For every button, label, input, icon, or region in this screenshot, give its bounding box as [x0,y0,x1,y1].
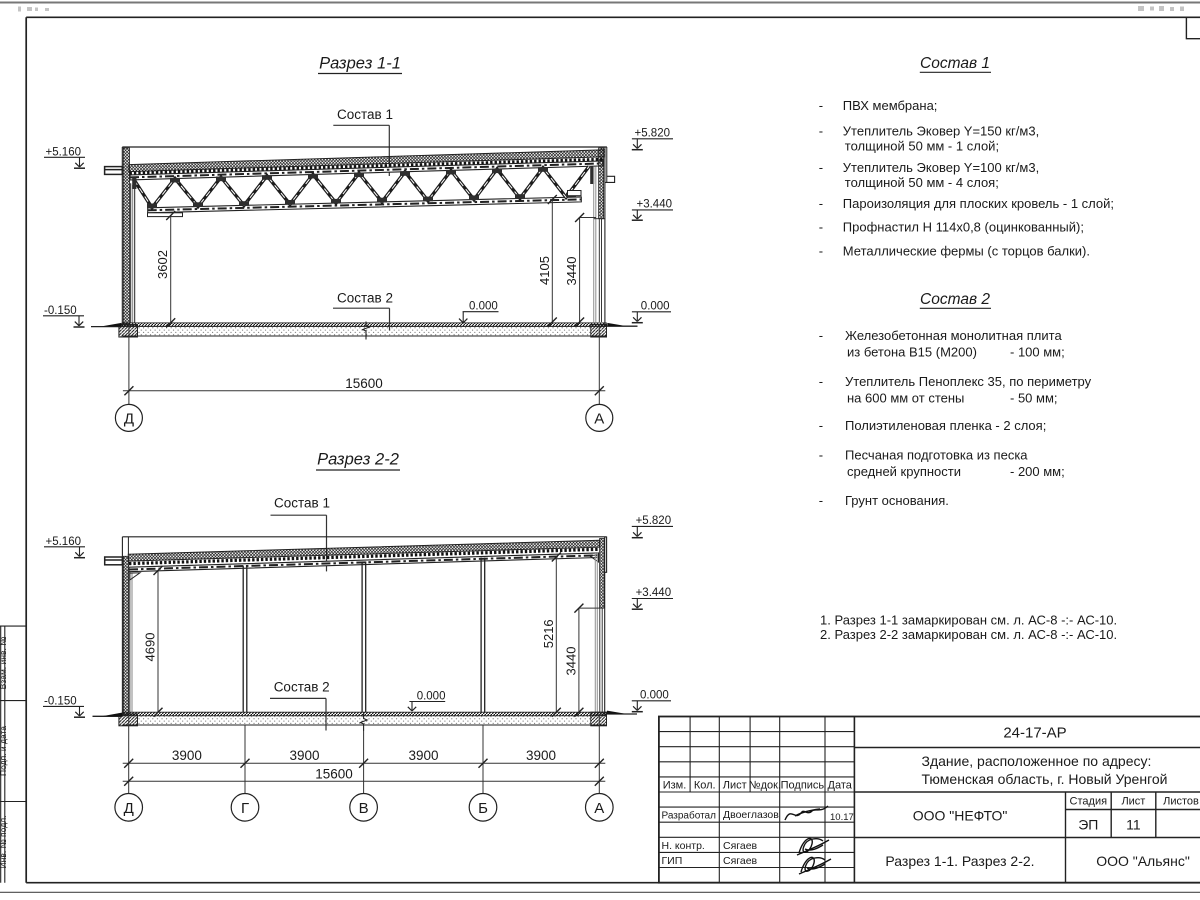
svg-text:Состав 1: Состав 1 [274,496,330,511]
svg-text:24-17-АР: 24-17-АР [1003,725,1066,742]
svg-text:3602: 3602 [155,250,170,279]
svg-text:Стадия: Стадия [1070,796,1108,808]
svg-text:- 100 мм;: - 100 мм; [1010,345,1065,360]
svg-text:Грунт основания.: Грунт основания. [845,493,949,508]
svg-text:-0.150: -0.150 [44,695,77,707]
svg-text:Утеплитель Эковер Y=150 кг/м3,: Утеплитель Эковер Y=150 кг/м3, [843,124,1039,139]
svg-text:- 50 мм;: - 50 мм; [1010,391,1058,406]
svg-text:3900: 3900 [408,748,438,763]
svg-text:1. Разрез 1-1 замаркирован см.: 1. Разрез 1-1 замаркирован см. л. АС-8 -… [820,613,1117,628]
svg-text:Д: Д [124,410,134,427]
svg-text:Разрез 2-2: Разрез 2-2 [317,451,399,469]
svg-text:Разработал: Разработал [662,810,717,822]
svg-text:4690: 4690 [143,633,158,662]
svg-text:В: В [359,800,369,817]
svg-text:Г: Г [241,800,249,817]
svg-text:толщиной 50 мм - 4 слоя;: толщиной 50 мм - 4 слоя; [845,175,999,190]
svg-text:толщиной 50 мм - 1 слой;: толщиной 50 мм - 1 слой; [845,138,999,153]
svg-text:Изм.: Изм. [663,780,687,792]
svg-text:Состав 1: Состав 1 [337,107,393,122]
svg-text:-: - [819,196,823,211]
svg-text:3900: 3900 [526,748,556,763]
svg-text:-: - [819,243,823,258]
svg-text:11: 11 [1126,817,1141,833]
svg-text:-0.150: -0.150 [44,305,77,317]
svg-text:2. Разрез 2-2 замаркирован см.: 2. Разрез 2-2 замаркирован см. л. АС-8 -… [820,627,1117,642]
svg-text:-: - [819,448,823,463]
svg-text:Дата: Дата [828,780,853,792]
svg-text:ПВХ мембрана;: ПВХ мембрана; [843,98,938,113]
svg-text:Д: Д [124,800,134,817]
svg-text:Металлические фермы (с торцов: Металлические фермы (с торцов балки). [843,243,1090,258]
svg-text:Подпись: Подпись [781,780,825,792]
svg-text:ГИП: ГИП [662,855,683,867]
svg-text:3900: 3900 [289,748,319,763]
svg-text:0.000: 0.000 [469,301,498,313]
svg-text:+5.820: +5.820 [635,127,671,139]
svg-text:- 200 мм;: - 200 мм; [1010,464,1065,479]
svg-text:Сягаев: Сягаев [723,840,758,852]
svg-text:ООО "Альянс": ООО "Альянс" [1096,853,1190,869]
svg-text:-: - [819,220,823,235]
svg-text:№док.: №док. [749,780,781,792]
svg-text:средней крупности: средней крупности [847,464,961,479]
svg-text:Разрез 1-1. Разрез 2-2.: Разрез 1-1. Разрез 2-2. [885,853,1034,869]
svg-text:Сягаев: Сягаев [723,855,758,867]
svg-text:-: - [819,124,823,139]
svg-text:+5.820: +5.820 [636,515,672,527]
svg-text:15600: 15600 [345,376,383,391]
svg-text:+3.440: +3.440 [637,198,673,210]
svg-text:ЭП: ЭП [1078,817,1098,833]
svg-text:Листов: Листов [1163,796,1199,808]
svg-text:Утеплитель Пеноплекс 35, по пе: Утеплитель Пеноплекс 35, по периметру [845,374,1092,389]
svg-text:Лист: Лист [723,780,747,792]
svg-text:Полиэтиленовая пленка - 2 слоя: Полиэтиленовая пленка - 2 слоя; [845,418,1046,433]
svg-text:Состав 2: Состав 2 [920,291,990,308]
svg-text:-: - [819,98,823,113]
svg-text:Подп. и дата: Подп. и дата [0,726,8,776]
svg-text:+3.440: +3.440 [636,587,672,599]
svg-text:-: - [819,328,823,343]
svg-text:3440: 3440 [564,647,579,676]
svg-text:А: А [594,410,604,427]
svg-text:Железобетонная монолитная пли: Железобетонная монолитная плита [845,328,1062,343]
svg-text:Состав 2: Состав 2 [337,291,393,306]
svg-text:А: А [594,800,604,817]
svg-text:Разрез 1-1: Разрез 1-1 [319,55,401,73]
svg-text:3440: 3440 [564,257,579,286]
svg-text:Тюменская область, г. Новый Ур: Тюменская область, г. Новый Уренгой [922,771,1168,787]
svg-text:ООО "НЕФТО": ООО "НЕФТО" [913,808,1008,824]
svg-text:Песчаная подготовка из песка: Песчаная подготовка из песка [845,448,1028,463]
svg-text:+5.160: +5.160 [46,536,82,548]
svg-text:0.000: 0.000 [417,691,446,703]
svg-text:Инв. № подл.: Инв. № подл. [0,816,8,869]
svg-text:15600: 15600 [315,767,353,782]
svg-text:Состав 1: Состав 1 [920,55,990,72]
svg-text:3900: 3900 [172,748,202,763]
svg-text:5216: 5216 [541,619,556,648]
svg-text:-: - [819,374,823,389]
svg-text:на 600 мм от стены: на 600 мм от стены [847,391,964,406]
svg-text:Здание, расположенное по адрес: Здание, расположенное по адресу: [922,753,1152,769]
svg-text:Н. контр.: Н. контр. [662,840,705,852]
svg-text:Состав 2: Состав 2 [274,680,330,695]
svg-text:из бетона В15 (М200): из бетона В15 (М200) [847,345,977,360]
svg-text:Б: Б [478,800,488,817]
svg-text:Утеплитель Эковер Y=100 кг/м3,: Утеплитель Эковер Y=100 кг/м3, [843,160,1039,175]
svg-text:+5.160: +5.160 [46,146,82,158]
svg-text:-: - [819,160,823,175]
svg-text:0.000: 0.000 [641,300,670,312]
svg-text:Двоеглазов: Двоеглазов [723,809,779,821]
svg-text:Пароизоляция для плоских крове: Пароизоляция для плоских кровель - 1 сло… [843,196,1114,211]
svg-text:4105: 4105 [537,256,552,285]
svg-text:-: - [819,493,823,508]
svg-text:Кол.: Кол. [694,780,716,792]
svg-text:Лист: Лист [1121,796,1145,808]
svg-text:10.17: 10.17 [830,812,854,823]
svg-text:0.000: 0.000 [640,689,669,701]
svg-text:-: - [819,418,823,433]
svg-text:Взам. инв. №: Взам. инв. № [0,637,8,690]
svg-text:Профнастил Н 114х0,8 (оцинкова: Профнастил Н 114х0,8 (оцинкованный); [843,220,1084,235]
